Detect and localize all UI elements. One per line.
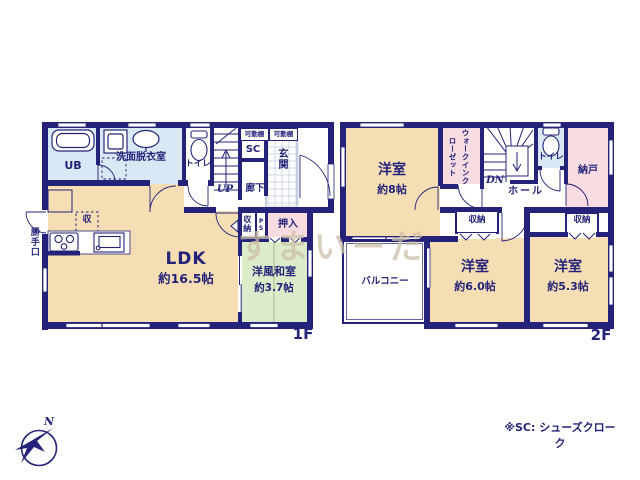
- room-label-ldk: LDK: [136, 250, 236, 269]
- stairs-up-label: UP: [212, 184, 238, 195]
- compass-north-label: N: [42, 416, 56, 428]
- stairs-2f: [484, 126, 533, 182]
- room-label-hall: ホール: [494, 186, 558, 197]
- toilet-icon-1f: [191, 131, 207, 161]
- storage-label-2f-a: 収納: [456, 216, 498, 225]
- room-label-bed5: 洋室: [528, 260, 608, 275]
- room-label-toilet-2f: トイレ: [536, 153, 566, 162]
- room-label-rouka: 廊下: [238, 184, 272, 194]
- room-label-wic: ウォークインクローゼット: [446, 129, 472, 185]
- floor2-label: 2F: [586, 327, 616, 344]
- room-size-bed5: 約5.3帖: [528, 281, 608, 293]
- room-label-nando: 納戸: [566, 165, 610, 176]
- room-label-bed6: 洋室: [435, 260, 515, 275]
- room-label-sc: SC: [240, 144, 266, 155]
- room-label-toilet-1f: トイレ: [184, 160, 212, 169]
- stairs-dn-label: DN: [482, 175, 508, 186]
- room-label-bed8: 洋室: [352, 163, 432, 178]
- room-label-genkan: 玄関: [276, 148, 287, 170]
- stove-icon: [50, 233, 78, 251]
- room-size-bed6: 約6.0帖: [435, 281, 515, 293]
- room-bed5: [526, 234, 610, 324]
- shelf-tag-b: 可動棚: [269, 128, 298, 141]
- wic-door-arc: [458, 184, 482, 209]
- room-label-senmen: 洗面脱衣室: [100, 152, 182, 163]
- kitchen-storage-label: 収: [76, 216, 98, 226]
- floorplan-page: UB 洗面脱衣室 トイレ 可動棚 可動棚 SC 玄関 UP 廊下 収 勝手口 L…: [0, 0, 640, 480]
- entrance-door-arc: [300, 155, 330, 196]
- storage-label-2f-b: 収納: [564, 216, 600, 225]
- bathtub-icon: [52, 130, 94, 151]
- shelf-tag-a: 可動棚: [240, 128, 269, 141]
- backdoor-label: 勝手口: [28, 227, 38, 257]
- stairs-1f: [214, 128, 238, 190]
- compass-icon: [15, 428, 57, 466]
- watermark: すまいーだ: [238, 220, 428, 268]
- sc-footnote: ※SC: シューズクローク: [500, 419, 620, 451]
- room-size-bed8: 約8帖: [352, 184, 432, 196]
- room-size-washitsu: 約3.7帖: [240, 283, 308, 295]
- floor1-label: 1F: [288, 326, 318, 343]
- room-label-balcony: バルコニー: [344, 277, 426, 287]
- toilet1-door-arc: [188, 186, 208, 206]
- room-size-ldk: 約16.5帖: [136, 272, 236, 286]
- washer-icon: [104, 130, 127, 153]
- room-label-ub: UB: [58, 160, 88, 172]
- kitchen-sink-icon: [94, 233, 124, 252]
